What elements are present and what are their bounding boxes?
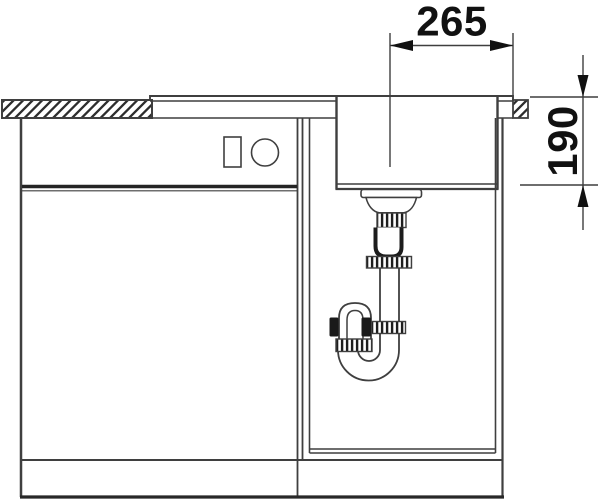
outlet-nut-right [362,318,372,337]
trap-coupling-nut [336,339,372,352]
strainer-cup [366,198,417,213]
strainer-flange [361,190,422,198]
strainer-knurled-nut [377,213,406,228]
technical-drawing: 265 190 [0,0,600,500]
tailpipe-coupling-nut [367,257,412,269]
drawer-rect-symbol [224,137,241,167]
countertop-right-section [513,100,528,118]
tailpipe-mid-coupling [372,322,406,334]
dim-265-label: 265 [416,0,488,45]
dim-190-label: 190 [539,105,586,177]
strainer-elbow [376,228,402,257]
countertop-left-section [2,100,152,118]
drawing-background [0,0,600,500]
sink-installation-diagram: 265 190 [0,0,600,500]
outlet-nut-left [330,318,339,337]
drawer-circle-symbol [252,139,279,166]
